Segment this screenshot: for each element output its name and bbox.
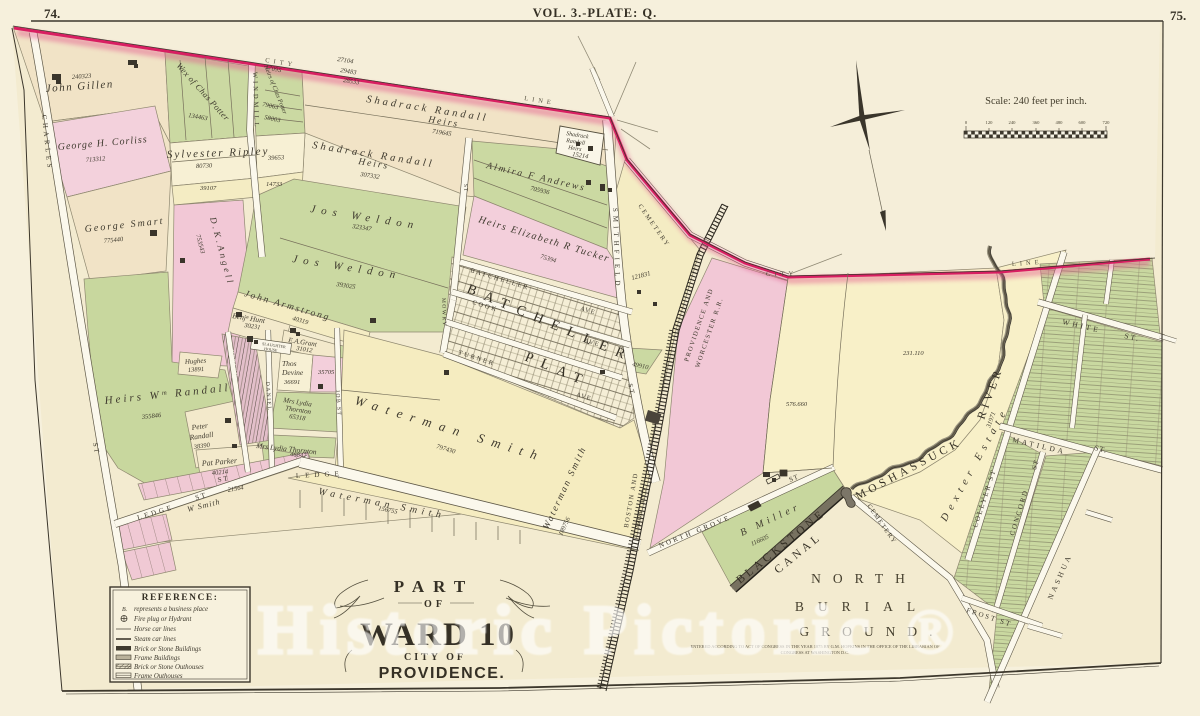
svg-text:Historic Pictoric: Historic Pictoric	[258, 592, 877, 669]
svg-text:B.: B.	[122, 607, 127, 613]
svg-text:Scale: 240 feet per inch.: Scale: 240 feet per inch.	[985, 96, 1087, 107]
svg-text:Devine: Devine	[281, 368, 304, 377]
svg-text:Frame Outhouses: Frame Outhouses	[133, 673, 183, 680]
svg-text:NORTH: NORTH	[811, 571, 917, 586]
svg-text:120: 120	[986, 120, 994, 125]
svg-text:39107: 39107	[199, 185, 217, 192]
svg-text:Horse car lines: Horse car lines	[133, 626, 176, 633]
svg-text:75.: 75.	[1170, 8, 1186, 23]
svg-text:CITY: CITY	[766, 270, 797, 278]
svg-text:13891: 13891	[188, 366, 205, 374]
svg-text:36691: 36691	[283, 379, 300, 386]
svg-text:Hughes: Hughes	[184, 357, 207, 367]
svg-text:600: 600	[1079, 120, 1087, 125]
svg-text:represents a business place: represents a business place	[134, 606, 208, 613]
svg-text:VOL. 3.-PLATE: Q.: VOL. 3.-PLATE: Q.	[533, 6, 658, 20]
svg-text:Brick or Stone Outhouses: Brick or Stone Outhouses	[134, 664, 204, 671]
svg-text:231.110: 231.110	[903, 350, 924, 357]
svg-text:Steam car lines: Steam car lines	[134, 636, 176, 643]
svg-text:576.660: 576.660	[786, 401, 808, 408]
svg-text:240: 240	[1009, 120, 1017, 125]
svg-text:74.: 74.	[44, 6, 60, 21]
svg-text:REFERENCE:: REFERENCE:	[142, 593, 219, 603]
svg-text:Thos: Thos	[282, 359, 297, 368]
svg-text:80730: 80730	[196, 162, 213, 170]
svg-text:35705: 35705	[317, 369, 335, 376]
svg-text:Brick or Stone Buildings: Brick or Stone Buildings	[134, 646, 201, 653]
svg-text:39653: 39653	[267, 154, 285, 162]
svg-text:MOWRY: MOWRY	[440, 298, 447, 327]
svg-text:®: ®	[906, 596, 954, 667]
svg-text:480: 480	[1056, 120, 1064, 125]
svg-text:Frame Buildings: Frame Buildings	[133, 655, 180, 662]
svg-text:240323: 240323	[72, 73, 93, 81]
svg-text:ST: ST	[462, 184, 468, 193]
svg-text:14733: 14733	[266, 181, 283, 188]
svg-text:Fire plug or Hydrant: Fire plug or Hydrant	[133, 616, 192, 623]
svg-text:360: 360	[1033, 120, 1041, 125]
svg-text:720: 720	[1103, 120, 1111, 125]
